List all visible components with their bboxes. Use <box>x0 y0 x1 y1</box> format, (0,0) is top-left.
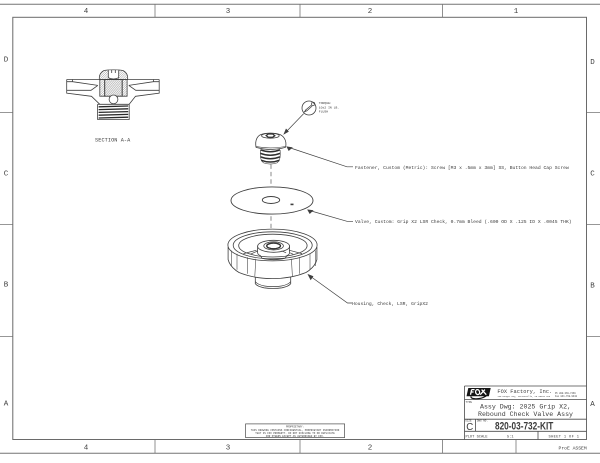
svg-text:C: C <box>4 170 9 178</box>
svg-text:A: A <box>4 400 9 408</box>
svg-text:130 Hangar Way, Watsonville, C: 130 Hangar Way, Watsonville, CA 95076 US… <box>497 395 550 398</box>
svg-text:4: 4 <box>84 444 89 452</box>
svg-text:TYPE: TYPE <box>466 401 473 404</box>
svg-text:C: C <box>590 171 595 179</box>
svg-text:D: D <box>4 57 9 65</box>
svg-text:4: 4 <box>84 8 89 16</box>
svg-text:3: 3 <box>226 444 231 452</box>
svg-text:Housing, Check, LSR, GripX2: Housing, Check, LSR, GripX2 <box>352 301 428 307</box>
svg-text:Valve, Custom: Grip X2 LSR Che: Valve, Custom: Grip X2 LSR Check, 0.7mm … <box>355 219 572 225</box>
svg-text:3: 3 <box>226 8 231 16</box>
svg-text:PLOT SCALE: PLOT SCALE <box>466 436 489 440</box>
svg-text:D: D <box>590 59 595 67</box>
svg-text:SECTION A-A: SECTION A-A <box>95 137 131 143</box>
svg-text:5:1: 5:1 <box>507 436 514 440</box>
svg-text:820-03-732-KIT: 820-03-732-KIT <box>495 421 554 433</box>
svg-text:B: B <box>590 283 595 291</box>
svg-text:TORQUE:: TORQUE: <box>319 101 332 105</box>
svg-text:SHEET 1 OF 1: SHEET 1 OF 1 <box>549 436 580 440</box>
svg-text:FOX Factory, Inc.: FOX Factory, Inc. <box>497 389 552 395</box>
svg-text:1: 1 <box>514 8 519 16</box>
svg-text:DWG NO.: DWG NO. <box>477 419 488 422</box>
svg-text:ProE ASSEM: ProE ASSEM <box>559 445 587 451</box>
svg-text:FLUSH: FLUSH <box>319 110 328 114</box>
svg-text:Assy Dwg: 2025 Grip X2,: Assy Dwg: 2025 Grip X2, <box>480 404 571 411</box>
svg-text:Fastener, Custom (Metric): Scr: Fastener, Custom (Metric): Screw [M3 x .… <box>355 165 569 171</box>
svg-text:Rebound Check Valve Assy: Rebound Check Valve Assy <box>478 411 573 418</box>
svg-text:Fax 831-768-9342: Fax 831-768-9342 <box>555 395 578 398</box>
svg-text:2: 2 <box>368 444 373 452</box>
svg-text:FOR OTHERS EXCEPT AS AUTHORIZE: FOR OTHERS EXCEPT AS AUTHORIZED BY FOX. <box>266 435 325 438</box>
svg-text:2: 2 <box>368 8 373 16</box>
svg-text:B: B <box>4 282 9 290</box>
svg-text:A: A <box>590 401 595 409</box>
svg-text:C: C <box>466 422 473 433</box>
